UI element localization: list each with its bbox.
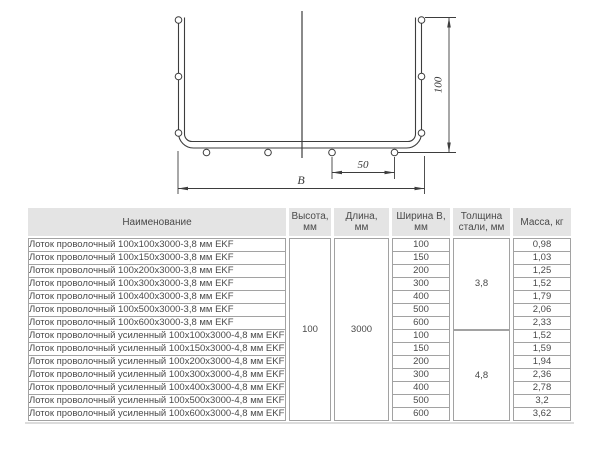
mass-cell: 0,98: [513, 238, 571, 252]
header-width: Ширина В, мм: [392, 208, 450, 238]
arrowhead-icon: [415, 187, 425, 191]
mass-cell: 2,06: [513, 304, 571, 317]
wire-circles: [175, 17, 425, 156]
width-cell: 100: [392, 238, 450, 252]
tray-inner-contour: [185, 18, 416, 142]
product-name-cell: Лоток проволочный усиленный 100х150х3000…: [28, 343, 286, 356]
product-name-cell: Лоток проволочный 100х400х3000-3,8 мм EK…: [28, 291, 286, 304]
dimension-height: 100: [398, 18, 456, 153]
header-height: Высота, мм: [289, 208, 331, 238]
dimension-width-label: B: [297, 173, 305, 187]
width-cell: 600: [392, 317, 450, 330]
mass-cell: 2,78: [513, 382, 571, 395]
wire-circle-icon: [391, 149, 398, 156]
height-merged-cell: 100: [289, 238, 331, 421]
wire-circle-icon: [175, 73, 182, 80]
width-cell: 100: [392, 330, 450, 343]
mass-cell: 2,33: [513, 317, 571, 330]
product-name-cell: Лоток проволочный усиленный 100х300х3000…: [28, 369, 286, 382]
wire-circle-icon: [329, 149, 336, 156]
mass-cell: 1,52: [513, 330, 571, 343]
width-cell: 300: [392, 369, 450, 382]
product-name-cell: Лоток проволочный 100х200х3000-3,8 мм EK…: [28, 265, 286, 278]
width-cell: 150: [392, 343, 450, 356]
technical-drawing: 100 50 B: [0, 0, 600, 205]
length-merged-cell: 3000: [334, 238, 389, 421]
product-name-cell: Лоток проволочный усиленный 100х100х3000…: [28, 330, 286, 343]
table-row: Лоток проволочный 100х100х3000-3,8 мм EK…: [28, 238, 571, 252]
width-cell: 500: [392, 304, 450, 317]
width-cell: 500: [392, 395, 450, 408]
header-length: Длина, мм: [334, 208, 389, 238]
mass-cell: 3,62: [513, 408, 571, 421]
mass-cell: 1,59: [513, 343, 571, 356]
arrowhead-icon: [447, 143, 451, 153]
mass-cell: 1,94: [513, 356, 571, 369]
dimension-height-label: 100: [433, 76, 445, 93]
spec-table: Наименование Высота, мм Длина, мм Ширина…: [25, 208, 574, 421]
wire-circle-icon: [265, 149, 272, 156]
arrowhead-icon: [447, 18, 451, 28]
mass-cell: 1,03: [513, 252, 571, 265]
product-name-cell: Лоток проволочный 100х300х3000-3,8 мм EK…: [28, 278, 286, 291]
dimension-spacing: 50: [332, 157, 395, 179]
arrowhead-icon: [332, 171, 342, 175]
width-cell: 300: [392, 278, 450, 291]
product-name-cell: Лоток проволочный усиленный 100х600х3000…: [28, 408, 286, 421]
header-mass: Масса, кг: [513, 208, 571, 238]
header-name: Наименование: [28, 208, 286, 238]
tray-cross-section: [179, 18, 422, 149]
wire-circle-icon: [418, 73, 425, 80]
product-name-cell: Лоток проволочный 100х100х3000-3,8 мм EK…: [28, 238, 286, 252]
wire-circle-icon: [418, 130, 425, 137]
arrowhead-icon: [385, 171, 395, 175]
wire-circle-icon: [418, 17, 425, 24]
thickness-merged-cell: 4,8: [453, 330, 510, 421]
width-cell: 400: [392, 291, 450, 304]
header-thickness: Толщина стали, мм: [453, 208, 510, 238]
product-name-cell: Лоток проволочный 100х500х3000-3,8 мм EK…: [28, 304, 286, 317]
mass-cell: 1,52: [513, 278, 571, 291]
width-cell: 400: [392, 382, 450, 395]
width-cell: 200: [392, 356, 450, 369]
width-cell: 200: [392, 265, 450, 278]
product-name-cell: Лоток проволочный усиленный 100х200х3000…: [28, 356, 286, 369]
product-name-cell: Лоток проволочный 100х150х3000-3,8 мм EK…: [28, 252, 286, 265]
wire-circle-icon: [203, 149, 210, 156]
tray-outer-contour: [179, 18, 422, 149]
wire-circle-icon: [175, 17, 182, 24]
mass-cell: 1,79: [513, 291, 571, 304]
product-name-cell: Лоток проволочный усиленный 100х400х3000…: [28, 382, 286, 395]
dimension-spacing-label: 50: [358, 159, 370, 171]
width-cell: 600: [392, 408, 450, 421]
table-header-row: Наименование Высота, мм Длина, мм Ширина…: [28, 208, 571, 238]
thickness-merged-cell: 3,8: [453, 238, 510, 330]
mass-cell: 2,36: [513, 369, 571, 382]
width-cell: 150: [392, 252, 450, 265]
product-name-cell: Лоток проволочный 100х600х3000-3,8 мм EK…: [28, 317, 286, 330]
arrowhead-icon: [178, 187, 188, 191]
mass-cell: 1,25: [513, 265, 571, 278]
spec-table-body: Лоток проволочный 100х100х3000-3,8 мм EK…: [28, 238, 571, 421]
wire-circle-icon: [175, 130, 182, 137]
product-name-cell: Лоток проволочный усиленный 100х500х3000…: [28, 395, 286, 408]
table-bottom-shadow: [25, 422, 574, 424]
mass-cell: 3,2: [513, 395, 571, 408]
